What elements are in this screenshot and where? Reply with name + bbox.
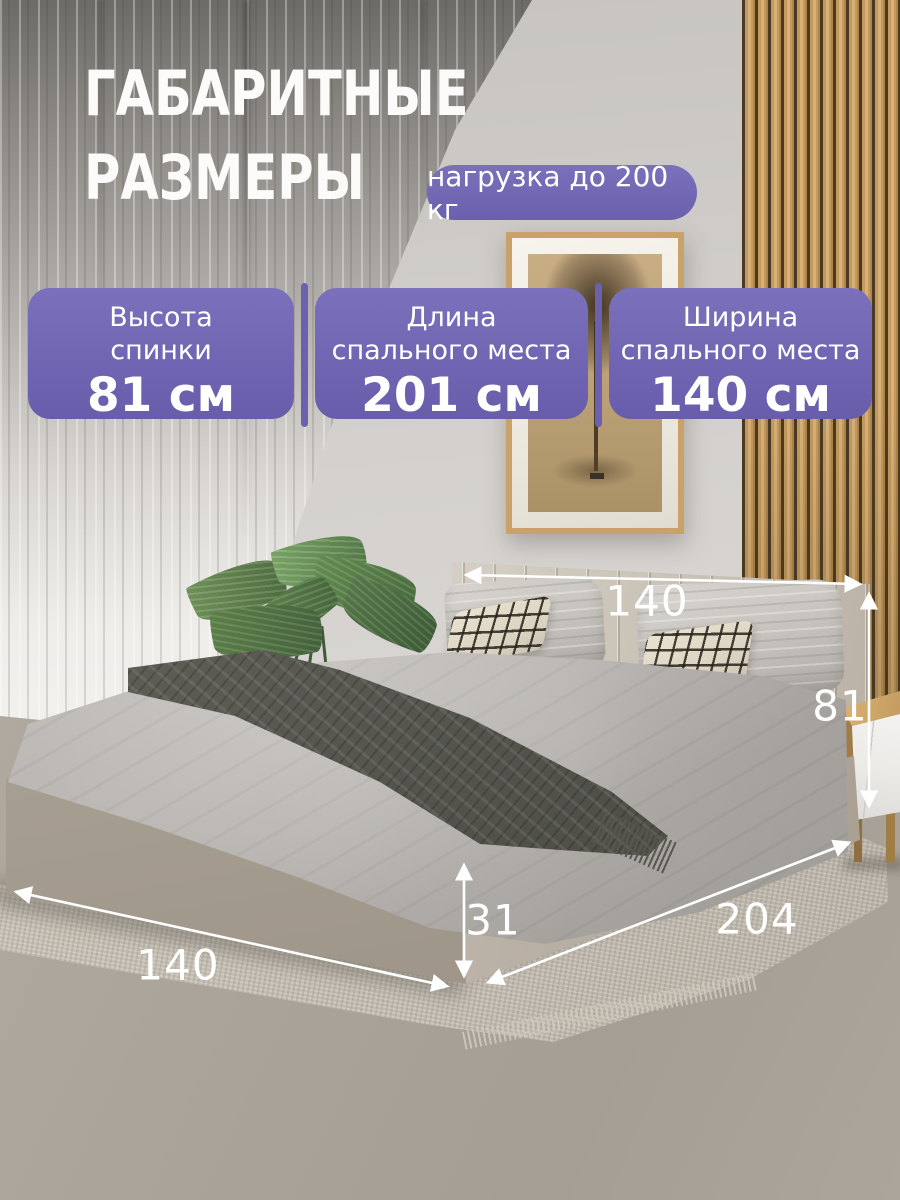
dim-label-width-top: 140 <box>605 577 688 626</box>
spec-card-label: Длина <box>315 301 588 334</box>
spec-card-value: 81 см <box>28 370 294 422</box>
spec-card-value: 201 см <box>315 370 588 422</box>
spec-card-label: Ширина <box>609 301 872 334</box>
spec-card-sleep-width: Ширина спального места 140 см <box>609 288 872 419</box>
nightstand-leg <box>886 808 895 862</box>
dim-label-frame-height: 31 <box>465 896 520 945</box>
product-infographic: 140 81 31 204 140 ГАБАРИТНЫЕ РАЗМЕРЫ наг… <box>0 0 900 1200</box>
picture-art-caption <box>590 473 604 479</box>
spec-card-value: 140 см <box>609 370 872 422</box>
dim-label-length: 204 <box>715 895 798 944</box>
spec-card-sleep-length: Длина спального места 201 см <box>315 288 588 419</box>
page-title-line2: РАЗМЕРЫ <box>84 136 469 220</box>
spec-card-label: спинки <box>28 334 294 367</box>
spec-card-headboard-height: Высота спинки 81 см <box>28 288 294 419</box>
load-capacity-badge: нагрузка до 200 кг <box>427 165 697 220</box>
spec-card-label: Высота <box>28 301 294 334</box>
dim-label-width-front: 140 <box>136 941 219 990</box>
page-title-line1: ГАБАРИТНЫЕ <box>84 52 469 136</box>
spec-card-label: спального места <box>609 334 872 367</box>
spec-card-label: спального места <box>315 334 588 367</box>
card-separator <box>595 283 602 427</box>
card-separator <box>301 283 308 427</box>
dim-label-headboard-height: 81 <box>812 682 867 731</box>
page-title: ГАБАРИТНЫЕ РАЗМЕРЫ <box>84 52 469 220</box>
load-capacity-badge-label: нагрузка до 200 кг <box>427 160 697 226</box>
